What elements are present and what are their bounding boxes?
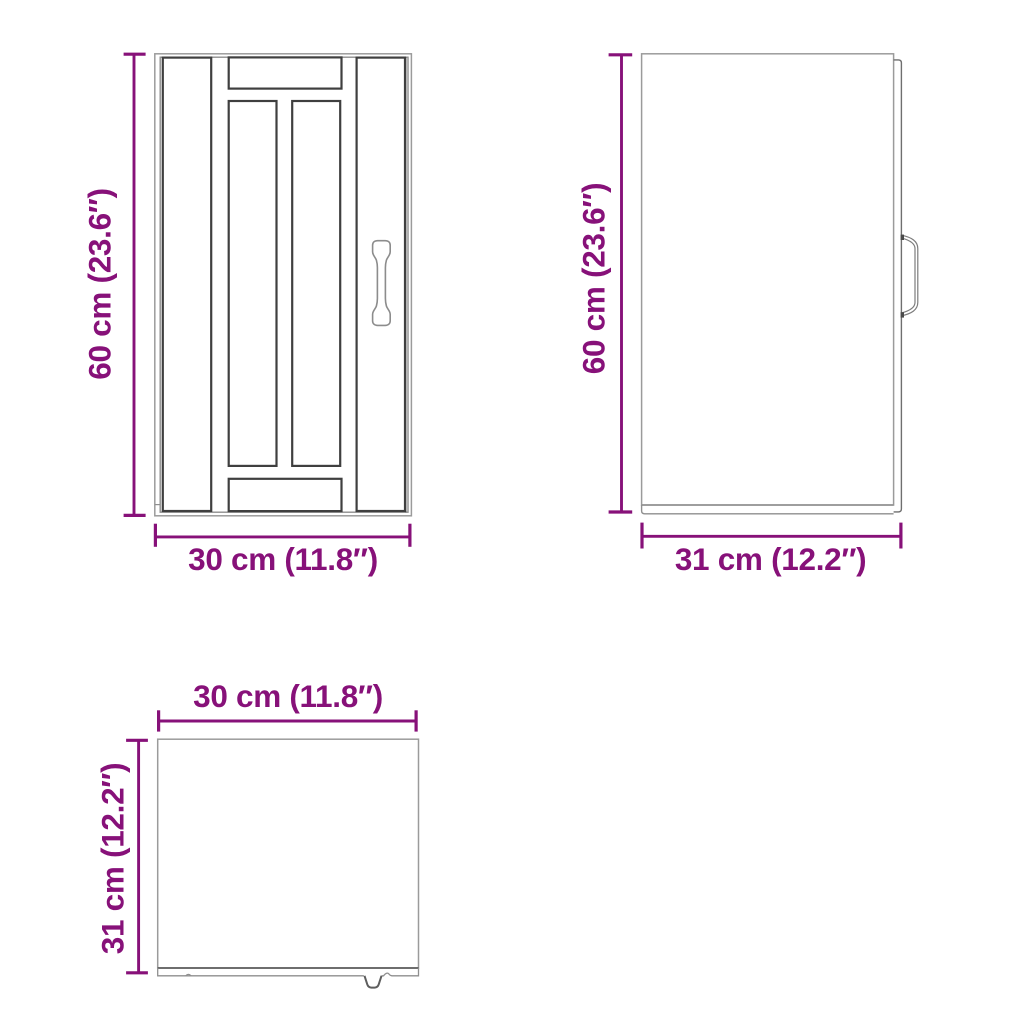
svg-text:30 cm (11.8″): 30 cm (11.8″) [193,678,383,714]
svg-text:31 cm (12.2″): 31 cm (12.2″) [675,541,867,577]
svg-text:60 cm (23.6″): 60 cm (23.6″) [82,188,118,380]
svg-text:30 cm (11.8″): 30 cm (11.8″) [188,541,378,577]
svg-text:31 cm (12.2″): 31 cm (12.2″) [95,763,131,955]
svg-text:60 cm (23.6″): 60 cm (23.6″) [576,183,612,375]
